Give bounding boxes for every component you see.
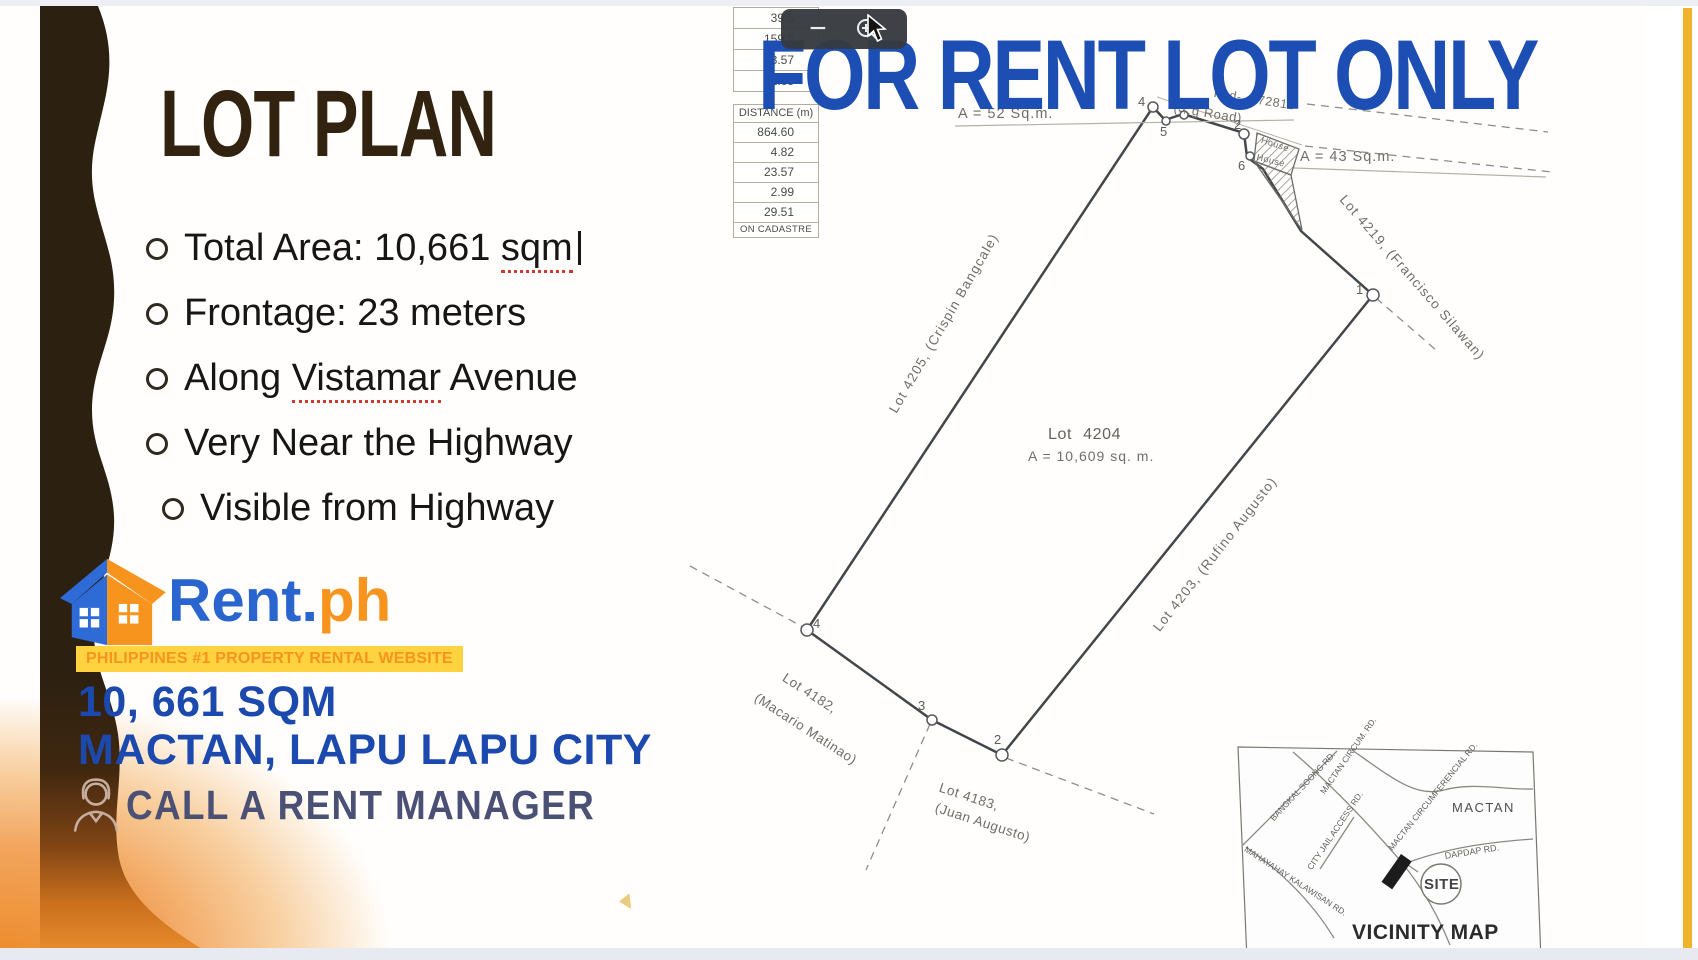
house-hatch xyxy=(1254,161,1302,230)
zoom-out-button[interactable]: − xyxy=(809,14,827,44)
table-cell: 29.51 xyxy=(734,202,818,222)
corner-label: 3 xyxy=(918,698,925,713)
table-cell: 2.99 xyxy=(734,182,818,202)
vicinity-map-title: VICINITY MAP xyxy=(1352,921,1499,945)
lot-plan-linework xyxy=(0,0,1698,960)
corner-label: 4 xyxy=(813,616,820,631)
mouse-cursor-icon xyxy=(866,14,890,44)
corner-label: 1 xyxy=(1356,282,1363,297)
top-chrome-strip xyxy=(0,0,1698,6)
bottom-chrome-strip xyxy=(0,948,1698,960)
amber-edge-bar xyxy=(1683,8,1692,948)
flyer-page: LOT PLAN Total Area: 10,661 sqm Frontage… xyxy=(0,0,1698,960)
leader-a43 xyxy=(1294,168,1546,177)
corner-label: 2 xyxy=(994,732,1001,747)
vicinity-region-label: MACTAN xyxy=(1452,800,1515,815)
plan-label-a43: A = 43 Sq.m. xyxy=(1300,149,1395,165)
corner-label: 6 xyxy=(1238,158,1245,173)
table-footer: ON CADASTRE xyxy=(734,222,818,237)
plan-label-lot4204: Lot 4204 xyxy=(1048,426,1121,444)
table-cell: 23.57 xyxy=(734,162,818,182)
table-cell: 4.82 xyxy=(734,142,818,162)
site-label: SITE xyxy=(1424,876,1459,893)
plan-label-area4204: A = 10,609 sq. m. xyxy=(1028,448,1154,464)
